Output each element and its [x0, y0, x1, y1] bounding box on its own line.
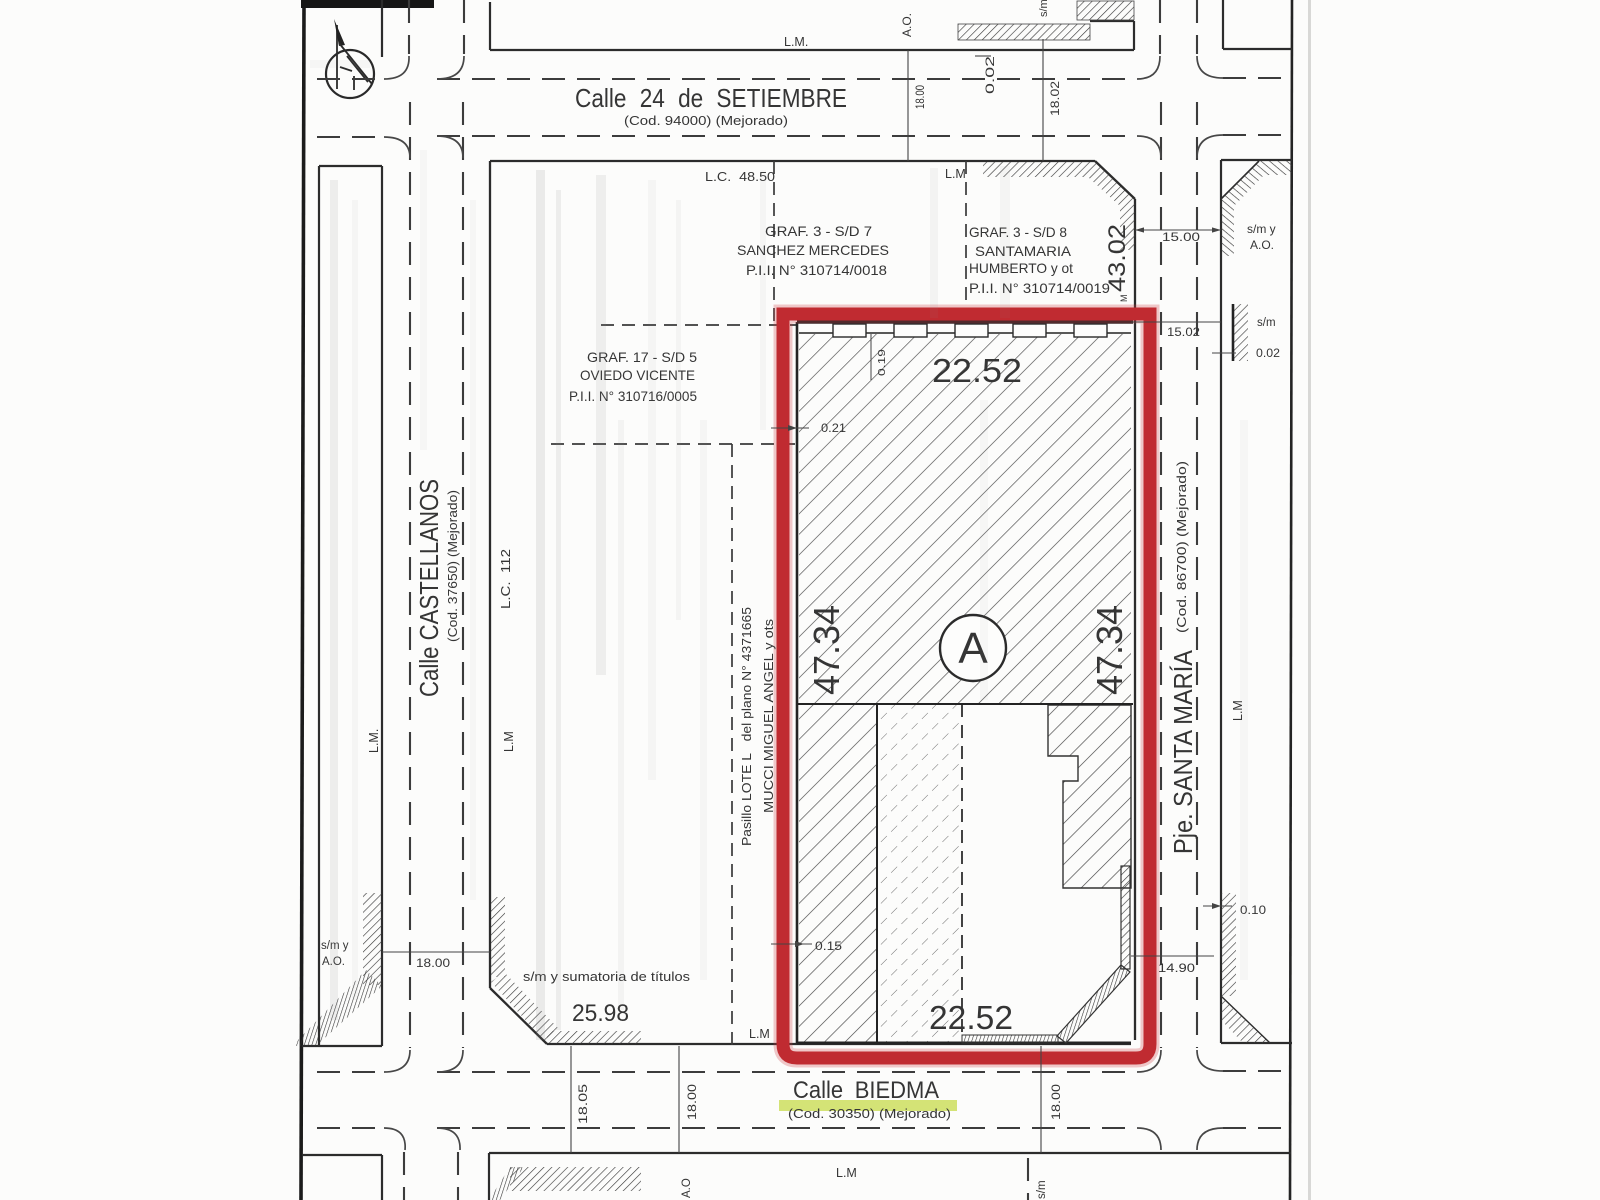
svg-text:A.O: A.O	[681, 1178, 693, 1198]
svg-text:Calle CASTELLANOS: Calle CASTELLANOS	[414, 479, 444, 697]
svg-text:s/m y sumatoria de títulos: s/m y sumatoria de títulos	[523, 970, 690, 984]
svg-text:s/m: s/m	[1257, 317, 1276, 329]
svg-text:GRAF. 3 - S/D 7: GRAF. 3 - S/D 7	[765, 223, 872, 239]
svg-text:SANCHEZ MERCEDES: SANCHEZ MERCEDES	[737, 242, 889, 258]
svg-text:(Cod. 94000) (Mejorado): (Cod. 94000) (Mejorado)	[624, 113, 788, 128]
svg-text:(Cod. 30350) (Mejorado): (Cod. 30350) (Mejorado)	[788, 1107, 951, 1121]
svg-text:L.M.: L.M.	[784, 35, 808, 49]
svg-text:L.M.: L.M.	[367, 729, 381, 753]
svg-text:Calle 24 de SETIEMBRE: Calle 24 de SETIEMBRE	[575, 83, 847, 113]
svg-text:0.21: 0.21	[821, 423, 846, 435]
svg-text:L.M: L.M	[945, 167, 966, 181]
svg-text:A.O.: A.O.	[1250, 238, 1274, 252]
svg-text:15.00: 15.00	[1162, 230, 1200, 244]
svg-text:s/m: s/m	[1038, 0, 1050, 17]
svg-text:GRAF. 3 - S/D 8: GRAF. 3 - S/D 8	[969, 224, 1067, 240]
svg-text:0.15: 0.15	[815, 941, 842, 953]
svg-text:0.02: 0.02	[1256, 348, 1280, 360]
svg-text:A.O.: A.O.	[900, 13, 914, 37]
svg-text:L.M: L.M	[836, 1166, 857, 1180]
svg-text:P.I.I. N° 310714/0018: P.I.I. N° 310714/0018	[746, 262, 887, 278]
svg-text:L.M: L.M	[502, 731, 516, 752]
svg-text:M: M	[1119, 295, 1129, 303]
svg-text:Pje. SANTA MARÍA: Pje. SANTA MARÍA	[1168, 649, 1198, 854]
svg-text:s/m y: s/m y	[1247, 222, 1276, 236]
svg-text:(Cod. 86700) (Mejorado): (Cod. 86700) (Mejorado)	[1175, 461, 1189, 633]
svg-text:15.02: 15.02	[1167, 325, 1200, 339]
svg-text:18.00: 18.00	[687, 1084, 699, 1120]
svg-text:18.00: 18.00	[915, 85, 927, 109]
svg-text:s/m: s/m	[1036, 1180, 1048, 1199]
svg-text:18.05: 18.05	[578, 1084, 590, 1124]
svg-text:43.02: 43.02	[1104, 224, 1131, 292]
svg-text:18.00: 18.00	[1051, 1084, 1063, 1120]
svg-text:22.52: 22.52	[929, 999, 1013, 1036]
svg-text:18.00: 18.00	[416, 956, 450, 970]
svg-text:HUMBERTO y ot: HUMBERTO y ot	[969, 260, 1073, 276]
svg-text:14.90: 14.90	[1158, 961, 1195, 975]
svg-text:47.34: 47.34	[806, 605, 847, 695]
svg-text:Calle BIEDMA: Calle BIEDMA	[793, 1077, 939, 1104]
svg-text:(Cod. 37650) (Mejorado): (Cod. 37650) (Mejorado)	[446, 490, 460, 642]
svg-text:0.19: 0.19	[876, 349, 888, 376]
svg-text:MUCCI MIGUEL ANGEL y ots: MUCCI MIGUEL ANGEL y ots	[762, 619, 776, 813]
svg-text:18.02: 18.02	[1050, 81, 1062, 116]
svg-text:22.52: 22.52	[932, 352, 1022, 389]
svg-text:SANTAMARIA: SANTAMARIA	[975, 243, 1072, 259]
svg-text:0.02: 0.02	[985, 56, 997, 94]
svg-text:L.C. 112: L.C. 112	[499, 549, 513, 609]
svg-text:P.I.I. N° 310714/0019: P.I.I. N° 310714/0019	[969, 280, 1110, 296]
svg-text:47.34: 47.34	[1089, 605, 1130, 695]
svg-text:Pasillo LOTE L del plano N°: Pasillo LOTE L del plano N° 4371665	[740, 607, 754, 846]
svg-text:L.M: L.M	[749, 1027, 770, 1041]
